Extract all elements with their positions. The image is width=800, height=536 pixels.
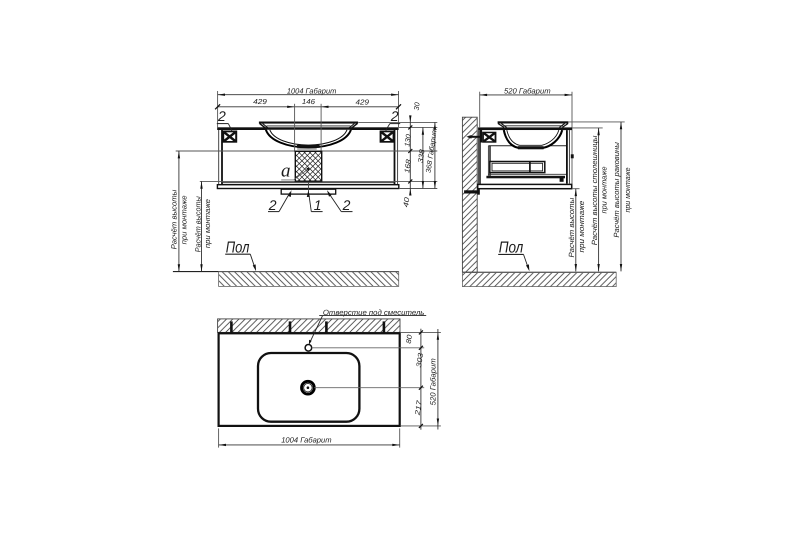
svg-text:Расчёт высоты: Расчёт высоты — [170, 189, 179, 249]
svg-text:40: 40 — [401, 197, 411, 208]
svg-text:30: 30 — [412, 102, 422, 111]
svg-text:429: 429 — [356, 98, 370, 107]
svg-text:Расчёт высоты: Расчёт высоты — [194, 196, 203, 252]
svg-text:2: 2 — [217, 108, 226, 124]
svg-text:при монтаже: при монтаже — [179, 195, 188, 244]
svg-text:2: 2 — [390, 108, 399, 124]
svg-text:при монтаже: при монтаже — [600, 167, 609, 214]
svg-text:при монтаже: при монтаже — [577, 201, 586, 253]
svg-text:520 Габарит: 520 Габарит — [504, 87, 551, 96]
svg-text:Расчёт высоты раковины: Расчёт высоты раковины — [612, 142, 621, 238]
svg-text:168: 168 — [402, 159, 413, 174]
svg-text:2: 2 — [268, 197, 277, 213]
svg-text:1: 1 — [314, 197, 322, 213]
svg-text:429: 429 — [253, 97, 267, 106]
svg-text:146: 146 — [302, 97, 315, 106]
svg-text:520 Габарит: 520 Габарит — [429, 358, 438, 405]
svg-text:1004 Габарит: 1004 Габарит — [287, 86, 336, 95]
svg-text:при монтаже: при монтаже — [203, 199, 212, 248]
svg-text:2: 2 — [342, 197, 351, 213]
svg-text:a: a — [281, 161, 291, 182]
svg-text:1004 Габарит: 1004 Габарит — [281, 435, 331, 444]
svg-text:при монтаже: при монтаже — [623, 167, 632, 212]
svg-text:80: 80 — [404, 334, 414, 344]
svg-text:130: 130 — [402, 134, 413, 148]
svg-text:Расчёт высоты: Расчёт высоты — [567, 197, 576, 257]
svg-text:Расчёт высоты столешницы: Расчёт высоты столешницы — [590, 135, 599, 245]
